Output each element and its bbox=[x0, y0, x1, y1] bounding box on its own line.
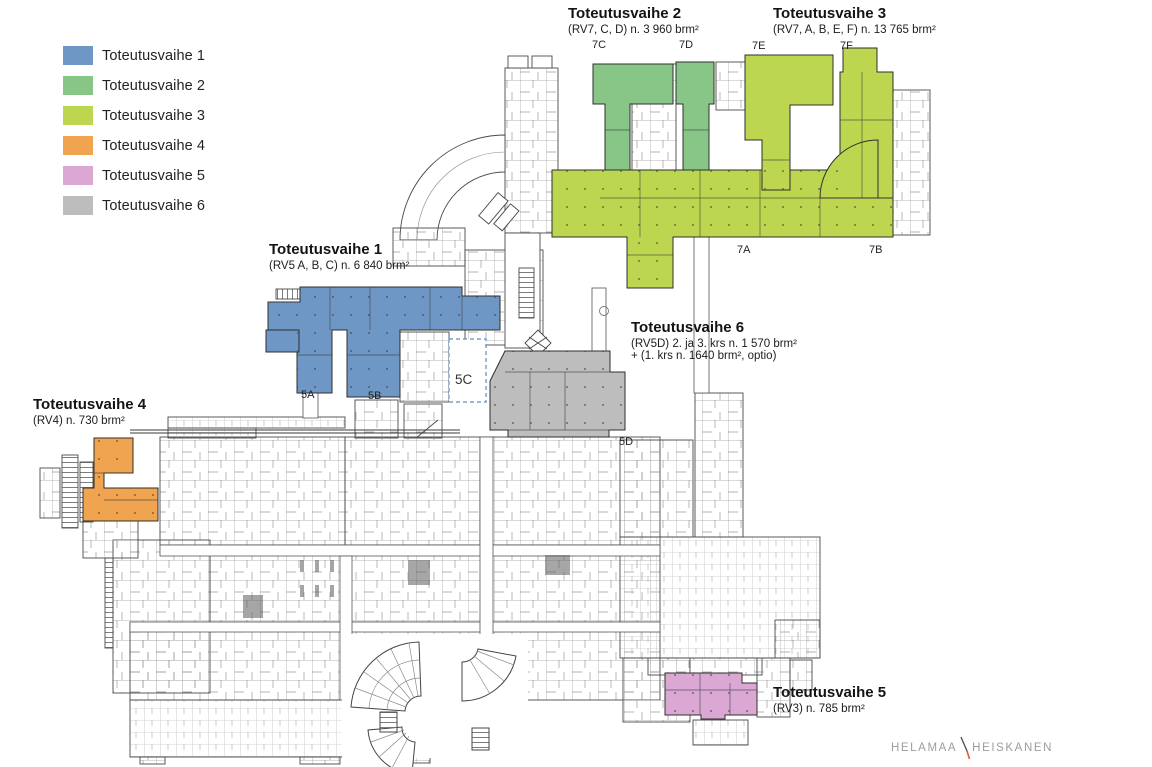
legend-item-1: Toteutusvaihe 1 bbox=[63, 46, 205, 65]
phase-4-subtitle: (RV4) n. 730 brm² bbox=[33, 415, 146, 427]
wing-label-5b: 5B bbox=[368, 390, 381, 402]
legend-swatch-5 bbox=[63, 166, 93, 185]
phase-2-subtitle: (RV7, C, D) n. 3 960 brm² bbox=[568, 24, 699, 36]
legend-swatch-2 bbox=[63, 76, 93, 95]
phase-1-title: Toteutusvaihe 1 bbox=[269, 241, 409, 258]
legend-swatch-6 bbox=[63, 196, 93, 215]
legend-label-5: Toteutusvaihe 5 bbox=[102, 168, 205, 184]
area-5c-dashed-outline bbox=[449, 339, 486, 402]
legend-label-2: Toteutusvaihe 2 bbox=[102, 78, 205, 94]
wing-label-7a: 7A bbox=[737, 244, 750, 256]
phase-5-subtitle: (RV3) n. 785 brm² bbox=[773, 703, 886, 715]
phase-4-title: Toteutusvaihe 4 bbox=[33, 396, 146, 413]
legend-item-5: Toteutusvaihe 5 bbox=[63, 166, 205, 185]
phase-5-annotation: Toteutusvaihe 5 (RV3) n. 785 brm² bbox=[773, 684, 886, 715]
auditorium-fan bbox=[342, 634, 528, 767]
legend-label-3: Toteutusvaihe 3 bbox=[102, 108, 205, 124]
legend-item-6: Toteutusvaihe 6 bbox=[63, 196, 205, 215]
logo-slash-icon bbox=[958, 735, 971, 761]
wing-label-5d: 5D bbox=[619, 436, 633, 448]
legend-item-2: Toteutusvaihe 2 bbox=[63, 76, 205, 95]
legend-swatch-1 bbox=[63, 46, 93, 65]
phase-3-subtitle: (RV7, A, B, E, F) n. 13 765 brm² bbox=[773, 24, 936, 36]
architect-logo: HELAMAA HEISKANEN bbox=[891, 735, 1053, 761]
wing-label-7e: 7E bbox=[752, 40, 765, 52]
wing-label-7b: 7B bbox=[869, 244, 882, 256]
legend-swatch-4 bbox=[63, 136, 93, 155]
phase-6-title: Toteutusvaihe 6 bbox=[631, 319, 797, 336]
wing-label-7d: 7D bbox=[679, 39, 693, 51]
phase-3-title: Toteutusvaihe 3 bbox=[773, 5, 936, 22]
phase-4-annotation: Toteutusvaihe 4 (RV4) n. 730 brm² bbox=[33, 396, 146, 427]
phase-2-title: Toteutusvaihe 2 bbox=[568, 5, 699, 22]
logo-part-2: HEISKANEN bbox=[972, 742, 1053, 754]
phase-1-region-west bbox=[266, 330, 299, 352]
legend-item-3: Toteutusvaihe 3 bbox=[63, 106, 205, 125]
phase-1-subtitle: (RV5 A, B, C) n. 6 840 brm² bbox=[269, 260, 409, 272]
site-plan-page: Toteutusvaihe 1 Toteutusvaihe 2 Toteutus… bbox=[0, 0, 1152, 767]
wing-label-7c: 7C bbox=[592, 39, 606, 51]
phase-2-annotation: Toteutusvaihe 2 (RV7, C, D) n. 3 960 brm… bbox=[568, 5, 699, 36]
legend-item-4: Toteutusvaihe 4 bbox=[63, 136, 205, 155]
phase-6-subtitle: (RV5D) 2. ja 3. krs n. 1 570 brm² bbox=[631, 338, 797, 350]
phase-1-annotation: Toteutusvaihe 1 (RV5 A, B, C) n. 6 840 b… bbox=[269, 241, 409, 272]
wing-label-5c: 5C bbox=[455, 372, 472, 387]
legend-label-4: Toteutusvaihe 4 bbox=[102, 138, 205, 154]
phase-3-annotation: Toteutusvaihe 3 (RV7, A, B, E, F) n. 13 … bbox=[773, 5, 936, 36]
legend-swatch-3 bbox=[63, 106, 93, 125]
phase-5-title: Toteutusvaihe 5 bbox=[773, 684, 886, 701]
phase-6-annotation: Toteutusvaihe 6 (RV5D) 2. ja 3. krs n. 1… bbox=[631, 319, 797, 362]
wing-label-5a: 5A bbox=[301, 389, 314, 401]
legend-label-6: Toteutusvaihe 6 bbox=[102, 198, 205, 214]
phase-6-subtitle-2: + (1. krs n. 1640 brm², optio) bbox=[631, 350, 797, 362]
legend-label-1: Toteutusvaihe 1 bbox=[102, 48, 205, 64]
phase-2-region-7d bbox=[676, 62, 714, 172]
wing-label-7f: 7F bbox=[840, 40, 853, 52]
logo-part-1: HELAMAA bbox=[891, 742, 957, 754]
